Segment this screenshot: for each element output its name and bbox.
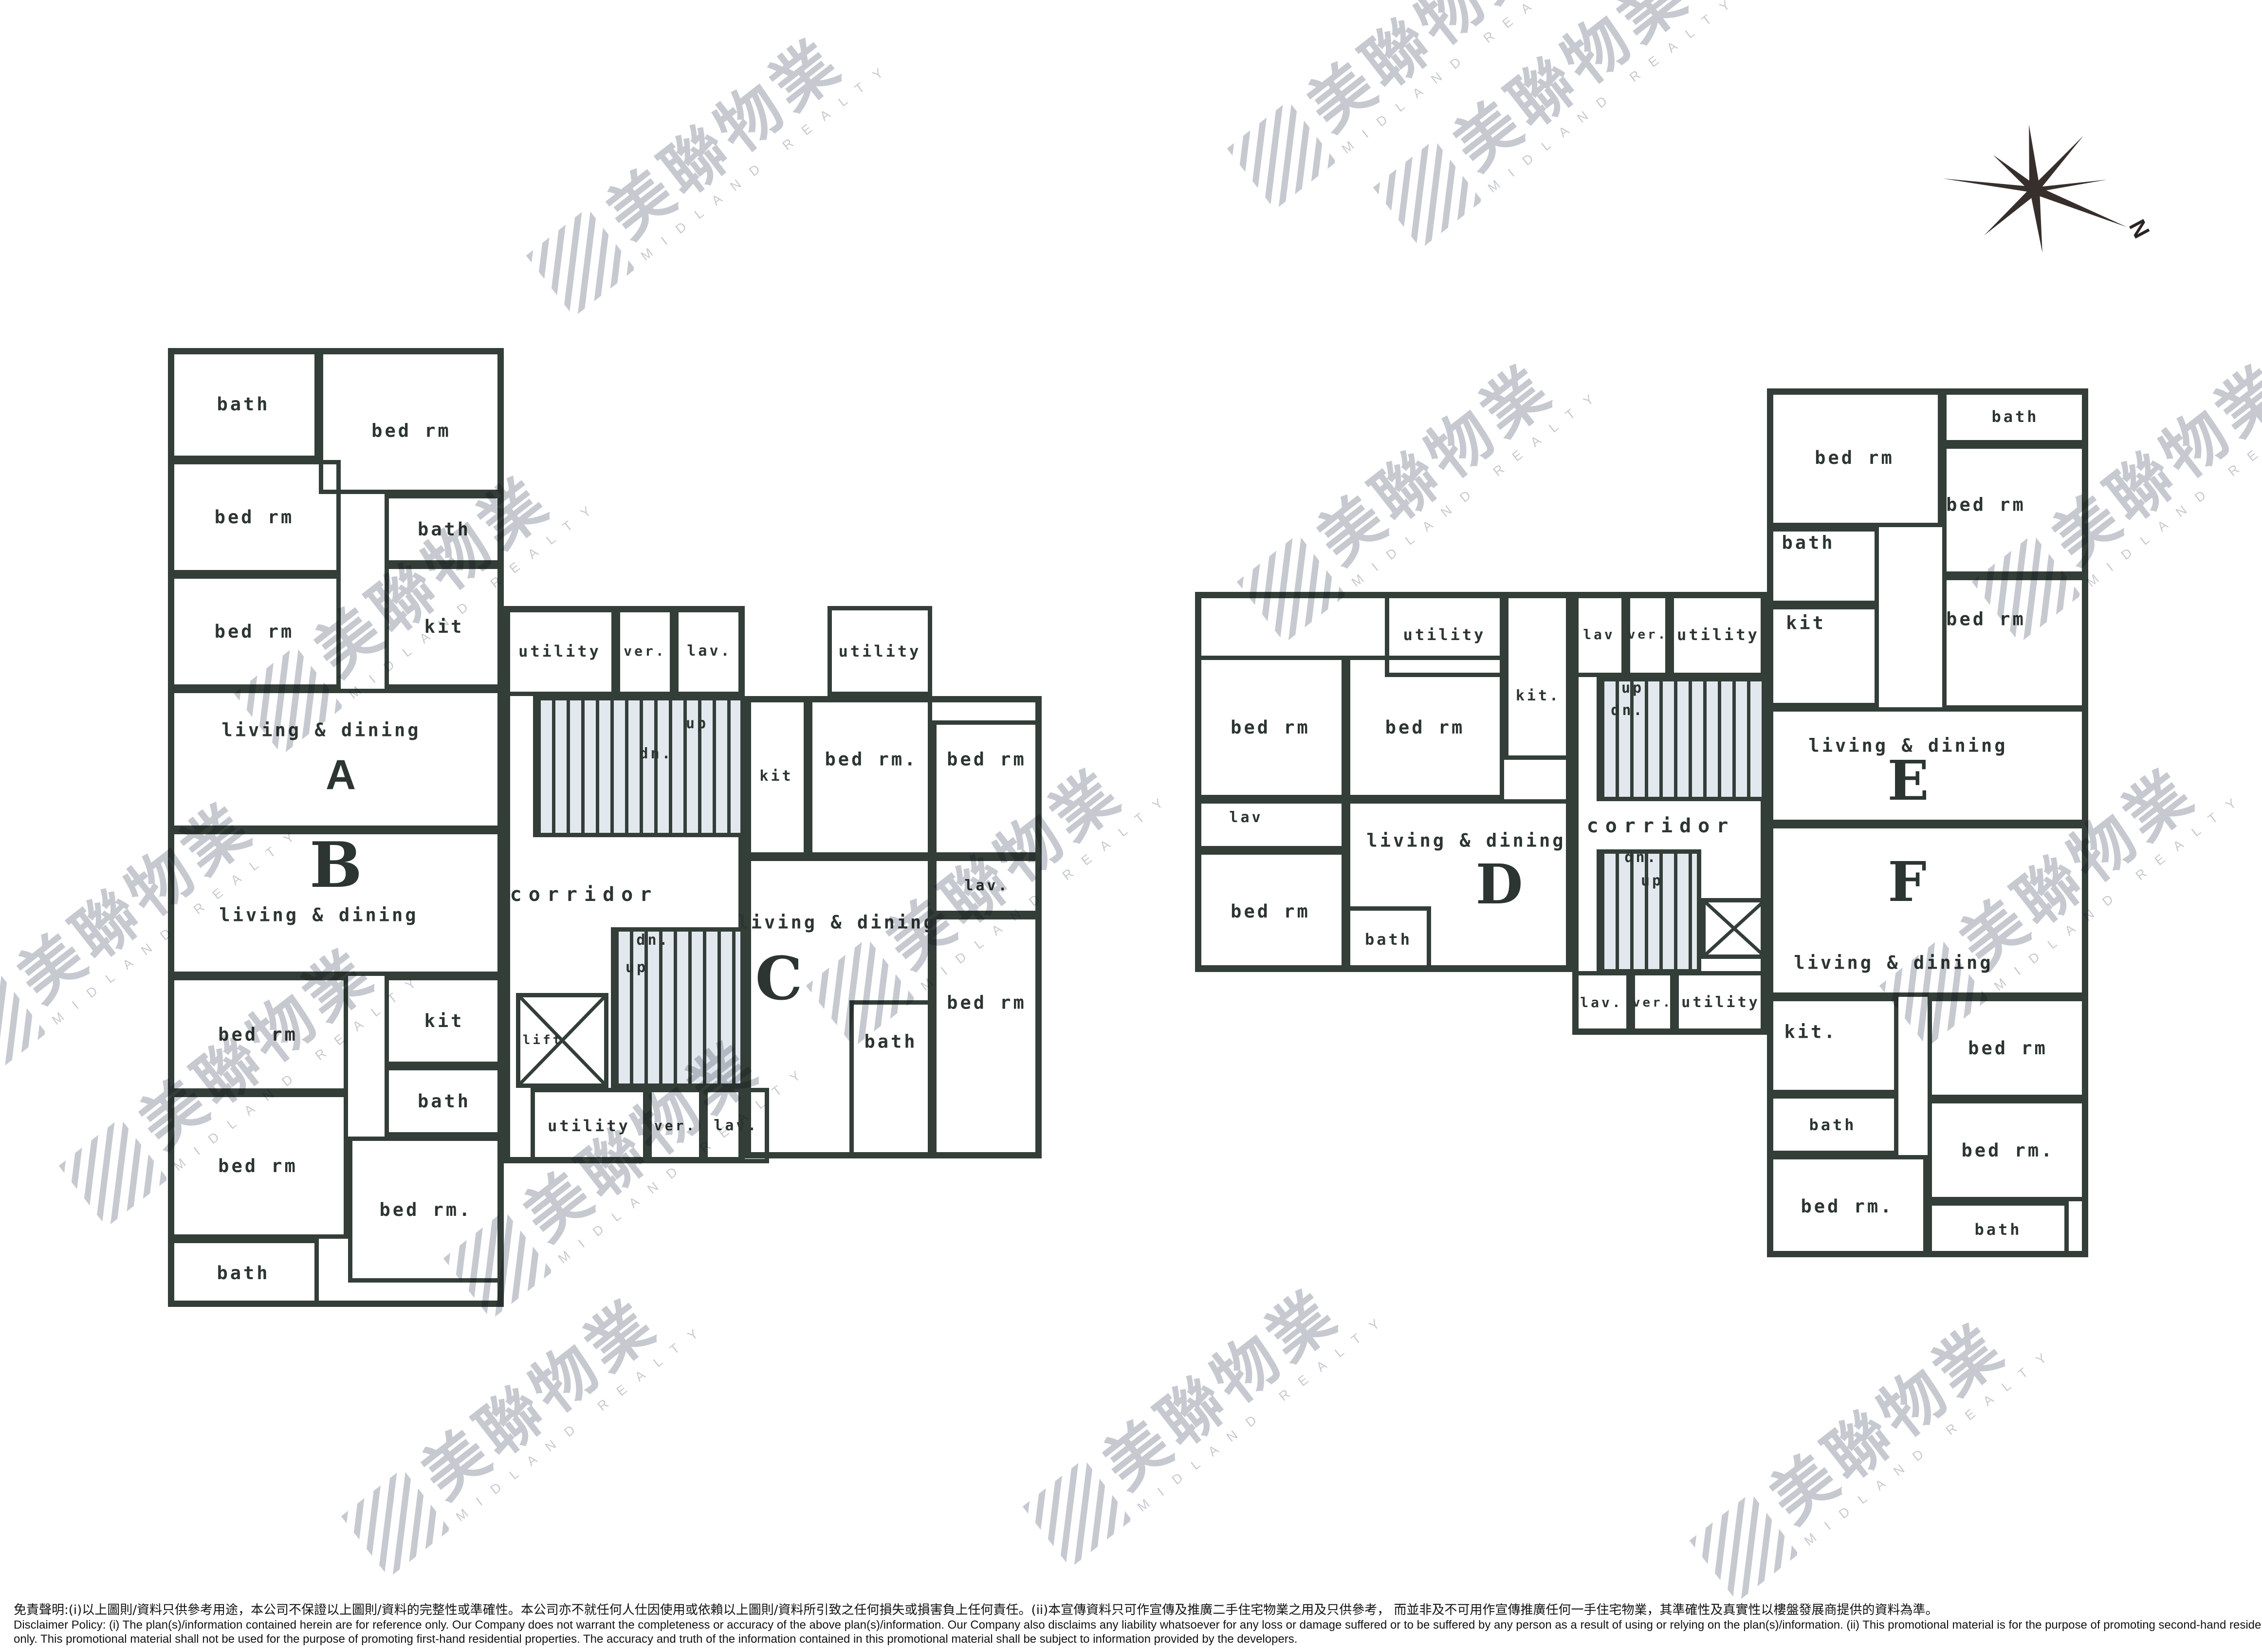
room-bed-rm: bed rm — [1346, 656, 1504, 799]
disclaimer-line-english-1: Disclaimer Policy: (i) The plan(s)/infor… — [14, 1618, 2253, 1632]
room-label-bed-rm: bed rm — [1968, 1039, 2048, 1057]
room-label-bath: bath — [1974, 1222, 2022, 1237]
room-bed-rm: bed rm — [1195, 850, 1346, 972]
compass-ray — [1984, 186, 2038, 235]
compass-north-icon: N — [1925, 119, 2207, 294]
room-label-kit: kit. — [1784, 1023, 1837, 1041]
room-label-lav: lav — [1583, 628, 1615, 642]
room-label-utility: utility — [1681, 995, 1760, 1010]
room-bed-rm: bed rm. — [1767, 1155, 1928, 1257]
room-lav: lav. — [1572, 971, 1631, 1034]
compass-ray — [2029, 125, 2040, 191]
room-label-ver: ver. — [1628, 628, 1668, 641]
room-ver: ver. — [1626, 592, 1670, 677]
room-label-bed-rm: bed rm. — [1801, 1197, 1894, 1215]
unit-label-E: E — [1887, 754, 1929, 808]
room-label-living-dining: living & dining — [1366, 832, 1565, 850]
room-label-kit: kit. — [1516, 689, 1561, 703]
room-label-lav: lav — [1229, 810, 1263, 825]
plan-annotation-dn: dn. — [1624, 850, 1658, 865]
room-bath: bath — [1942, 388, 2088, 444]
room-bath: bath — [1928, 1201, 2069, 1257]
room-lav: lav — [1572, 592, 1626, 677]
room-bath: bath — [1346, 906, 1431, 972]
room-label-bath: bath — [1809, 1117, 1856, 1133]
unit-label-F: F — [1888, 855, 1927, 910]
room-label-utility: utility — [1677, 627, 1760, 642]
room-bed-rm: bed rm — [1928, 997, 2088, 1099]
room-label-bath: bath — [1365, 932, 1412, 947]
room-bed-rm: bed rm. — [1928, 1099, 2088, 1201]
room-label-bed-rm: bed rm — [1231, 902, 1310, 920]
compass-ray — [2030, 189, 2042, 253]
disclaimer-line-english-2: only. This promotional material shall no… — [14, 1632, 2253, 1646]
disclaimer-line-chinese: 免責聲明:(i)以上圖則/資料只供參考用途，本公司不保證以上圖則/資料的完整性或… — [14, 1602, 2253, 1618]
room-label-bed-rm: bed rm — [1815, 449, 1894, 467]
room-label-utility: utility — [1403, 627, 1486, 642]
room-bed-rm: bed rm — [1767, 388, 1942, 527]
room-bed-rm — [1942, 576, 2088, 710]
room-label-bed-rm: bed rm — [1946, 496, 2026, 514]
room-utility: utility — [1670, 592, 1767, 677]
plan-annotation-up: up — [1641, 874, 1663, 888]
room-label-bed-rm: bed rm — [1385, 718, 1465, 736]
compass-ray — [2033, 186, 2128, 227]
room-label-lav: lav. — [1580, 996, 1622, 1010]
room-label-ver: ver. — [1633, 996, 1673, 1009]
floorplan-canvas: N 免責聲明:(i)以上圖則/資料只供參考用途，本公司不保證以上圖則/資料的完整… — [0, 0, 2262, 1652]
plan-annotation-corridor: corridor — [1587, 816, 1735, 836]
room-label-living-dining: living & dining — [1794, 954, 1993, 972]
room-label-bed-rm: bed rm. — [1962, 1141, 2055, 1159]
building-block-def: utilitykit.bed rmbed rmlavbed rmliving &… — [0, 0, 2262, 1652]
room-label-kit: kit — [1786, 614, 1826, 632]
room-lav — [1195, 799, 1346, 850]
stairs — [1597, 849, 1701, 973]
room-bed-rm: bed rm — [1195, 656, 1346, 799]
plan-annotation-dn: dn. — [1611, 703, 1644, 718]
lift — [1701, 898, 1767, 959]
room-kit — [1767, 997, 1898, 1094]
room-kit — [1504, 592, 1572, 760]
room-label-bath: bath — [1782, 534, 1835, 552]
room-bath: bath — [1767, 1094, 1898, 1155]
room-label-bed-rm: bed rm — [1946, 610, 2026, 628]
room-ver: ver. — [1631, 971, 1674, 1034]
room-label-bed-rm: bed rm — [1231, 718, 1310, 736]
compass-star-icon — [1925, 119, 2207, 294]
disclaimer: 免責聲明:(i)以上圖則/資料只供參考用途，本公司不保證以上圖則/資料的完整性或… — [14, 1602, 2253, 1646]
room-utility: utility — [1674, 971, 1767, 1034]
unit-label-D: D — [1475, 858, 1523, 912]
room-label-bath: bath — [1991, 409, 2039, 424]
lift-x-icon — [1706, 902, 1763, 954]
plan-annotation-up: up — [1621, 681, 1644, 696]
